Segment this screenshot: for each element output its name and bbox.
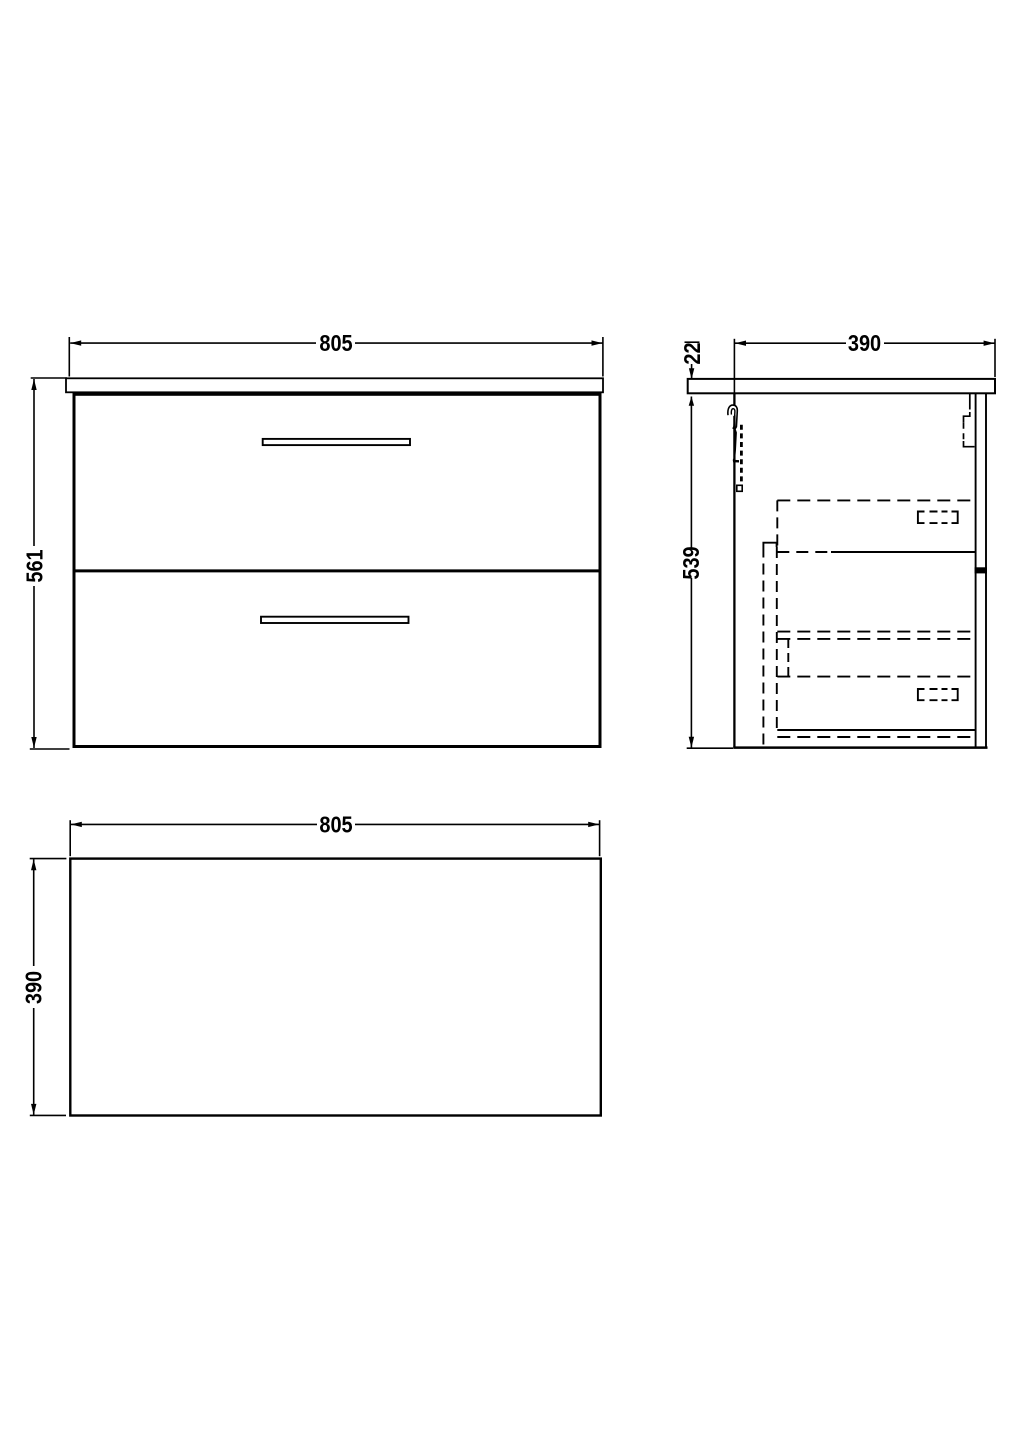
svg-text:805: 805 [319,811,352,838]
svg-text:805: 805 [319,329,352,356]
svg-text:390: 390 [848,329,881,356]
svg-text:22: 22 [678,342,705,364]
svg-text:561: 561 [21,549,48,582]
svg-text:390: 390 [20,971,47,1004]
svg-text:539: 539 [677,546,704,579]
